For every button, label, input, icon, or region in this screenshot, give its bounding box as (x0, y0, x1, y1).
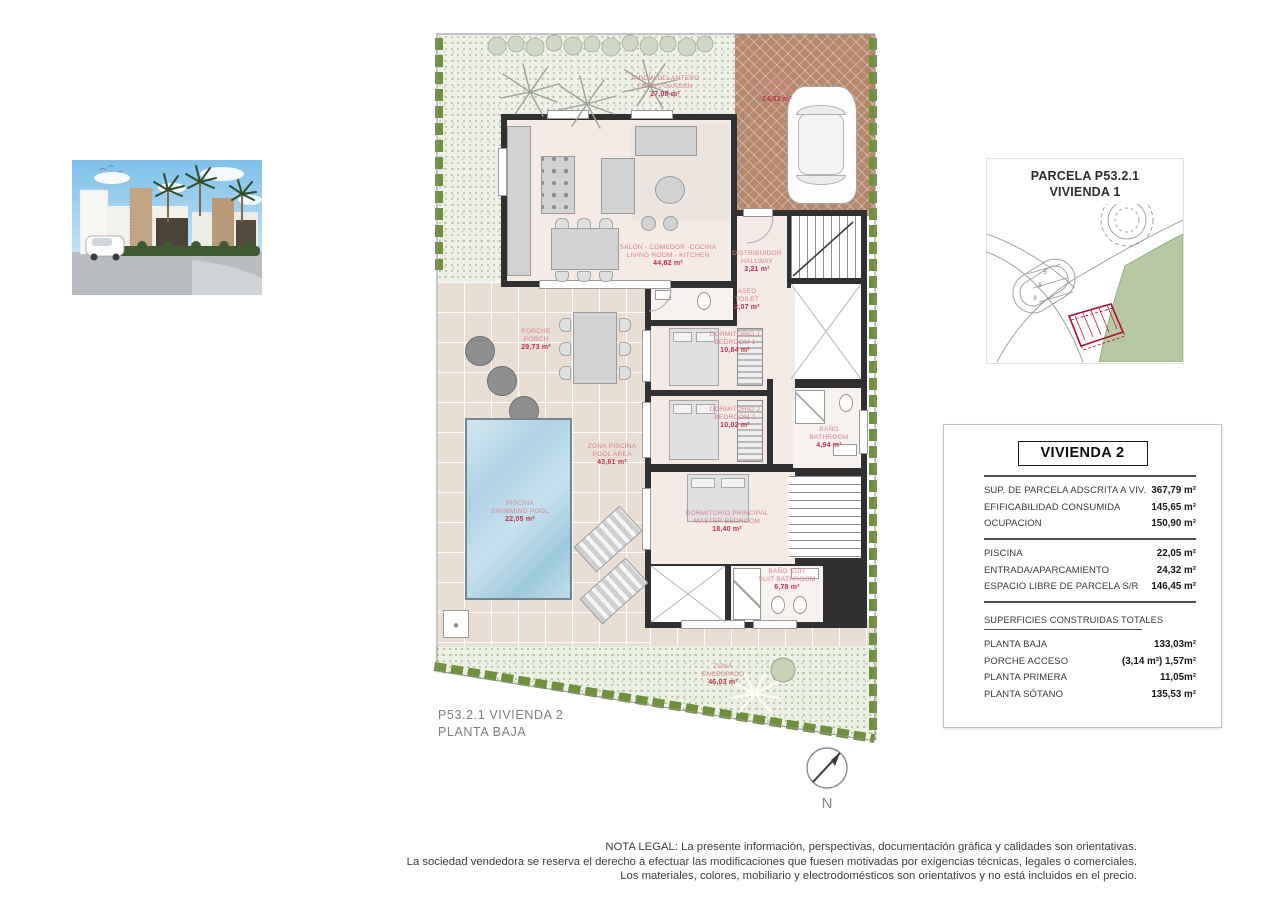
sofa-1 (635, 126, 697, 156)
label-area: 2,07 m² (734, 304, 760, 312)
porch-chair (559, 318, 571, 332)
window-suite-south (753, 620, 797, 629)
pillow (673, 332, 692, 342)
shower-tray (795, 390, 825, 424)
info-rows-bottom: PLANTA BAJA 133,03m² PORCHE ACCESO (3,14… (984, 639, 1196, 700)
brochure-page: { "site_map": { "title_line1": "PARCELA … (0, 0, 1280, 905)
label-es: JARDÍN DELANTERO (630, 75, 699, 83)
porch-table (573, 312, 617, 384)
row-value: 135,53 m² (1151, 689, 1196, 700)
lounge-chair (487, 366, 517, 396)
legal-line3: Los materiales, colores, mobiliario y el… (357, 869, 1137, 884)
entry-door (743, 208, 773, 217)
hedge-right (869, 38, 877, 732)
divider (984, 475, 1196, 477)
villa-render-photo (72, 160, 262, 295)
label-en: ENTRANCE (758, 88, 796, 96)
row-value: (3,14 m²) 1,57m² (1122, 656, 1196, 667)
staircase-up (791, 216, 861, 278)
window-living-north-2 (631, 110, 673, 119)
label-en: PORCH (521, 336, 551, 344)
info-row: ENTRADA/APARCAMIENTO 24,32 m² (984, 565, 1196, 576)
label-es: BAÑO (809, 426, 848, 434)
stool-1 (641, 216, 656, 231)
info-rows-top: SUP. DE PARCELA ADSCRITA A VIV. 367,79 m… (984, 485, 1196, 529)
label-toilet: ASEO TOILET 2,07 m² (734, 288, 760, 312)
label-area: 44,82 m² (620, 260, 717, 268)
suite-wc (771, 596, 785, 614)
row-label: PLANTA BAJA (984, 639, 1047, 650)
site-map-title: PARCELA P53.2.1 VIVIENDA 1 (987, 159, 1183, 200)
staircase-basement (789, 476, 861, 558)
row-label: PLANTA SÓTANO (984, 689, 1063, 700)
pillow (691, 478, 715, 488)
label-es: PORCHE (521, 328, 551, 336)
label-en: TOILET (734, 296, 760, 304)
label-living: SALÓN - COMEDOR -COCINA LIVING ROOM - KI… (620, 244, 717, 268)
label-entrance: ACCESO ENTRANCE 24,32 m² (758, 80, 796, 104)
label-bedroom2: DORMITORIO 2 BEDROOM 2 10,02 m² (710, 406, 761, 430)
north-letter: N (822, 795, 833, 812)
porch-chair (559, 342, 571, 356)
outdoor-shower (443, 610, 469, 638)
row-value: 146,45 m² (1151, 581, 1196, 592)
north-arrow-art: N (797, 742, 857, 814)
label-en: SUIT BATHROOM (759, 576, 816, 584)
porch-chair (619, 318, 631, 332)
label-en: BEDROOM 1 (710, 339, 761, 347)
info-row: PLANTA BAJA 133,03m² (984, 639, 1196, 650)
armchair (655, 176, 685, 204)
row-label: PISCINA (984, 548, 1023, 559)
row-label: ENTRADA/APARCAMIENTO (984, 565, 1109, 576)
label-bedroom1: DORMITORIO 1 BEDROOM 1 10,84 m² (710, 331, 761, 355)
site-map-title-line1: PARCELA P53.2.1 (987, 168, 1183, 184)
dining-chair (555, 271, 569, 282)
label-es: SALÓN - COMEDOR -COCINA (620, 244, 717, 252)
bathroom-wc (839, 394, 853, 412)
label-area: 4,94 m² (809, 442, 848, 450)
parcel-number: 8 (1033, 296, 1037, 302)
window-bedroom1 (642, 330, 651, 382)
label-area: 10,84 m² (710, 347, 761, 355)
label-en: LIVING ROOM - KITCHEN (620, 252, 717, 260)
divider (984, 601, 1196, 603)
divider (984, 538, 1196, 540)
pillow (721, 478, 745, 488)
dining-table (551, 228, 619, 270)
label-es: BAÑO SUIT (759, 568, 816, 576)
label-es: DORMITORIO 2 (710, 406, 761, 414)
site-map-box: PARCELA P53.2.1 VIVIENDA 1 5 6 8 (986, 158, 1184, 364)
stair-void (791, 284, 861, 379)
stool-2 (663, 216, 678, 231)
section-heading: SUPERFICIES CONSTRUIDAS TOTALES (984, 615, 1142, 630)
window-kitchen-west (498, 148, 507, 196)
label-es: DORMITORIO 1 (710, 331, 761, 339)
label-area: 22,05 m² (491, 516, 549, 524)
site-map-title-line2: VIVIENDA 1 (987, 184, 1183, 200)
info-row: PLANTA SÓTANO 135,53 m² (984, 689, 1196, 700)
label-en: HALLWAY (732, 258, 782, 266)
walk-in-closet (651, 566, 725, 622)
parcel-number: 5 (1043, 270, 1047, 276)
porch-chair (619, 342, 631, 356)
car-windshield (796, 105, 846, 115)
label-es: DORMITORIO PRINCIPAL (686, 510, 769, 518)
info-row: SUP. DE PARCELA ADSCRITA A VIV. 367,79 m… (984, 485, 1196, 496)
label-pool: PISCINA SWIMMING POOL 22,05 m² (491, 500, 549, 524)
legal-line2: La sociedad vendedora se reserva el dere… (357, 855, 1137, 870)
row-label: PORCHE ACCESO (984, 656, 1068, 667)
car-top-view (787, 86, 857, 204)
parcel-number: 6 (1038, 283, 1042, 289)
row-label: SUP. DE PARCELA ADSCRITA A VIV. (984, 485, 1146, 496)
floor-plan: JARDÍN DELANTERO FRONT GARDEN 27,08 m² A… (435, 30, 877, 742)
label-area: 29,73 m² (521, 344, 551, 352)
label-master-bedroom: DORMITORIO PRINCIPAL MASTER BEDROOM 18,4… (686, 510, 769, 534)
porch-chair (559, 366, 571, 380)
row-value: 22,05 m² (1157, 548, 1196, 559)
label-lawn: ZONA ENCESPADO 46,03 m² (702, 663, 745, 687)
label-area: 3,21 m² (732, 266, 782, 274)
corridor (773, 288, 795, 464)
info-row: OCUPACION 150,90 m² (984, 518, 1196, 529)
north-arrow: N (797, 742, 857, 814)
label-area: 6,78 m² (759, 584, 816, 592)
label-es: ZONA PISCINA (588, 443, 637, 451)
dining-chair (577, 218, 591, 229)
dining-chair (599, 218, 613, 229)
site-map-art: 5 6 8 (987, 204, 1183, 362)
kitchen-island (541, 156, 575, 214)
lounge-chair (465, 336, 495, 366)
info-row: ESPACIO LIBRE DE PARCELA S/R 146,45 m² (984, 581, 1196, 592)
kitchen-counter (507, 126, 531, 276)
label-area: 27,08 m² (630, 91, 699, 99)
label-es: PISCINA (491, 500, 549, 508)
sofa-2 (601, 158, 635, 214)
row-value: 150,90 m² (1151, 518, 1196, 529)
label-es: DISTRIBUIDOR (732, 250, 782, 258)
villa-render-art (72, 160, 262, 295)
label-front-garden: JARDÍN DELANTERO FRONT GARDEN 27,08 m² (630, 75, 699, 99)
label-en: BATHROOM (809, 434, 848, 442)
porch-chair (619, 366, 631, 380)
dining-chair (577, 271, 591, 282)
row-label: PLANTA PRIMERA (984, 672, 1067, 683)
suite-shower (733, 568, 761, 620)
car-roof (798, 113, 844, 175)
info-row: PLANTA PRIMERA 11,05m² (984, 672, 1196, 683)
dining-chair (599, 271, 613, 282)
info-row: EFIFICABILIDAD CONSUMIDA 145,65 m² (984, 502, 1196, 513)
row-value: 24,32 m² (1157, 565, 1196, 576)
toilet-wc (697, 292, 711, 310)
label-area: 46,03 m² (702, 679, 745, 687)
window-bathroom-east (859, 410, 868, 454)
hedge-left (435, 38, 443, 270)
label-area: 10,02 m² (710, 422, 761, 430)
window-master-west (642, 488, 651, 550)
car-rear-window (796, 175, 846, 185)
plan-caption-line2: PLANTA BAJA (438, 724, 563, 741)
row-value: 367,79 m² (1151, 485, 1196, 496)
label-en: MASTER BEDROOM (686, 518, 769, 526)
label-en: BEDROOM 2 (710, 414, 761, 422)
label-es: ZONA (702, 663, 745, 671)
info-rows-mid: PISCINA 22,05 m² ENTRADA/APARCAMIENTO 24… (984, 548, 1196, 592)
label-en: SWIMMING POOL (491, 508, 549, 516)
info-panel: VIVIENDA 2 SUP. DE PARCELA ADSCRITA A VI… (943, 424, 1222, 728)
toilet-sink (655, 290, 671, 300)
label-area: 24,32 m² (758, 96, 796, 104)
label-area: 18,40 m² (686, 526, 769, 534)
window-master-south (681, 620, 745, 629)
plan-caption-line1: P53.2.1 VIVIENDA 2 (438, 707, 563, 724)
window-bedroom2 (642, 402, 651, 458)
label-suite-bathroom: BAÑO SUIT SUIT BATHROOM 6,78 m² (759, 568, 816, 592)
info-panel-title: VIVIENDA 2 (1018, 441, 1148, 466)
label-es: ASEO (734, 288, 760, 296)
suite-bidet (793, 596, 807, 614)
label-pool-area: ZONA PISCINA POOL AREA 43,61 m² (588, 443, 637, 467)
label-area: 43,61 m² (588, 459, 637, 467)
legal-note: NOTA LEGAL: La presente información, per… (357, 840, 1137, 884)
label-porch: PORCHE PORCH 29,73 m² (521, 328, 551, 352)
label-en: ENCESPADO (702, 671, 745, 679)
label-es: ACCESO (758, 80, 796, 88)
info-row: PISCINA 22,05 m² (984, 548, 1196, 559)
info-row: PORCHE ACCESO (3,14 m²) 1,57m² (984, 656, 1196, 667)
row-label: ESPACIO LIBRE DE PARCELA S/R (984, 581, 1139, 592)
legal-line1: NOTA LEGAL: La presente información, per… (357, 840, 1137, 855)
row-label: EFIFICABILIDAD CONSUMIDA (984, 502, 1120, 513)
window-living-north-1 (547, 110, 589, 119)
row-value: 145,65 m² (1151, 502, 1196, 513)
label-en: POOL AREA (588, 451, 637, 459)
plan-caption: P53.2.1 VIVIENDA 2 PLANTA BAJA (438, 707, 563, 741)
label-en: FRONT GARDEN (630, 83, 699, 91)
row-label: OCUPACION (984, 518, 1042, 529)
row-value: 11,05m² (1160, 672, 1196, 683)
dining-chair (555, 218, 569, 229)
row-value: 133,03m² (1154, 639, 1196, 650)
label-hallway: DISTRIBUIDOR HALLWAY 3,21 m² (732, 250, 782, 274)
pillow (673, 404, 692, 414)
label-bathroom: BAÑO BATHROOM 4,94 m² (809, 426, 848, 450)
